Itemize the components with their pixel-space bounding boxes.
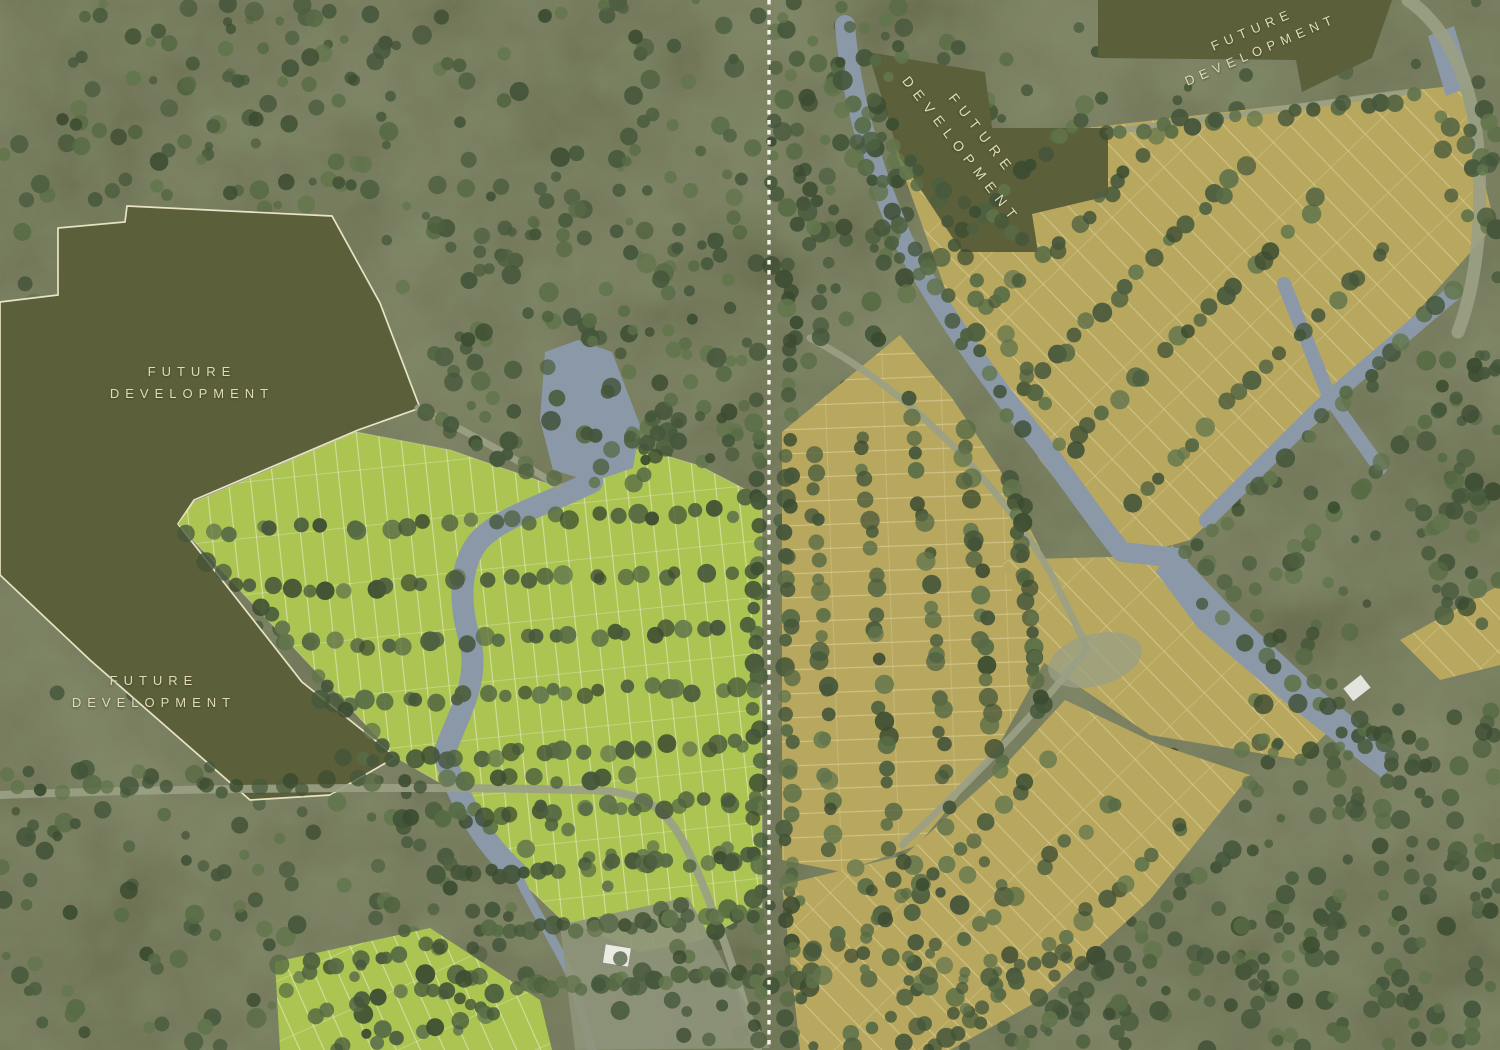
- label-line: DEVELOPMENT: [72, 692, 236, 714]
- masterplan-map: FUTURE DEVELOPMENT FUTURE DEVELOPMENT FU…: [0, 0, 1500, 1050]
- label-line: DEVELOPMENT: [110, 383, 274, 405]
- masterplan-scene: [0, 0, 1500, 1050]
- label-line: FUTURE: [72, 670, 236, 692]
- future-development-label-west-upper: FUTURE DEVELOPMENT: [110, 361, 274, 405]
- label-line: FUTURE: [110, 361, 274, 383]
- future-development-label-west-lower: FUTURE DEVELOPMENT: [72, 670, 236, 714]
